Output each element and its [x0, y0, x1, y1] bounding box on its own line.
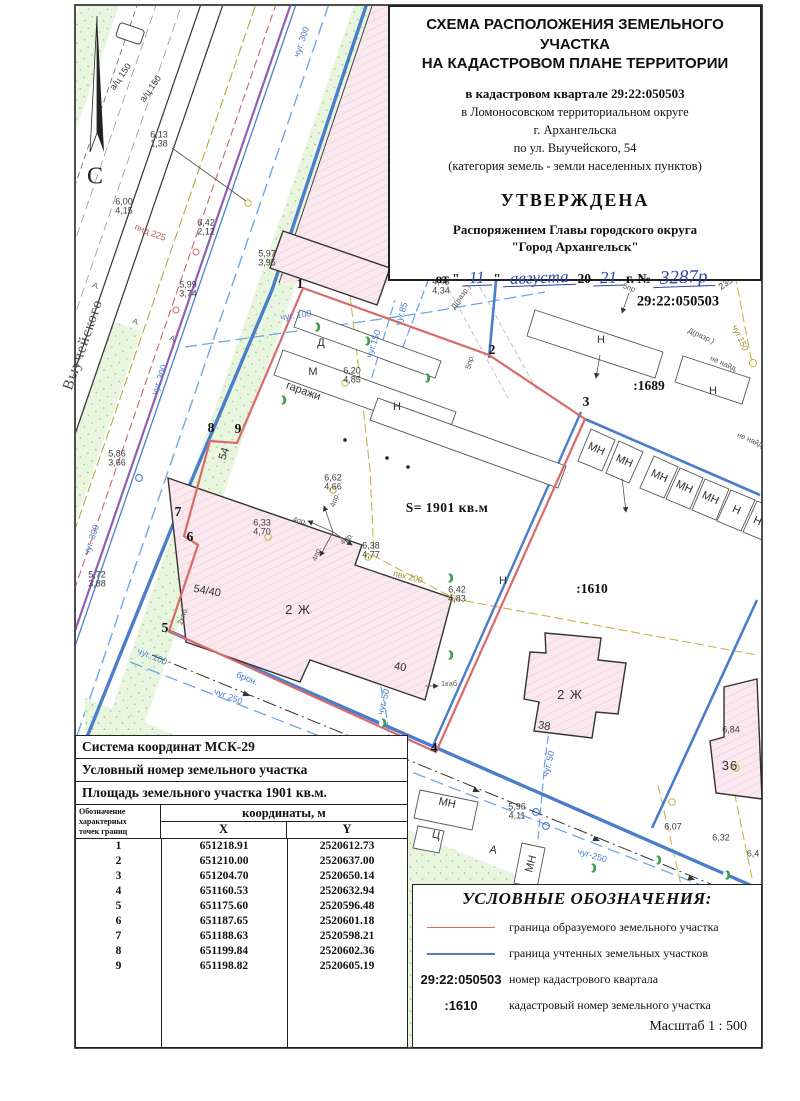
table-row: 2651210.002520637.00: [76, 854, 407, 869]
coord-cell: 651175.60: [161, 899, 287, 914]
table-header: Обозначение характерных точек границ коо…: [76, 805, 407, 839]
approval-date-line: от " 11 " августа 20 21 г. № 3287р: [390, 270, 760, 287]
land-category-line: (категория земель - земли населенных пун…: [390, 159, 760, 174]
building-54-40: [168, 478, 452, 700]
coord-cell: 4: [76, 884, 161, 899]
coord-cell: 651187.65: [161, 914, 287, 929]
road-symbol: [115, 22, 144, 45]
coord-cell: 2520598.21: [287, 929, 407, 944]
table-row: 4651160.532520632.94: [76, 884, 407, 899]
street-line: по ул. Выучейского, 54: [390, 141, 760, 156]
building-36: [710, 679, 762, 799]
legend-title: УСЛОВНЫЕ ОБОЗНАЧЕНИЯ:: [413, 889, 761, 909]
title-block: СХЕМА РАСПОЛОЖЕНИЯ ЗЕМЕЛЬНОГО УЧАСТКА НА…: [388, 5, 762, 281]
district-line: в Ломоносовском территориальном округе: [390, 105, 760, 120]
cadastral-scheme-page: чуг. 300чуг. 300чуг. 300чуг. 100чуг. 100…: [0, 0, 800, 1101]
date-suffix: г. №: [626, 271, 651, 287]
coord-cell: 2520596.48: [287, 899, 407, 914]
coord-cell: 651210.00: [161, 854, 287, 869]
date-prefix: от ": [436, 271, 460, 287]
date-year-prefix: 20: [577, 271, 591, 287]
coord-cell: 1: [76, 839, 161, 854]
date-quote: ": [493, 271, 501, 287]
column-divider: [161, 839, 162, 1047]
coordinates-table: Система координат МСК-29 Условный номер …: [75, 735, 408, 1048]
table-row: 9651198.822520605.19: [76, 959, 407, 974]
coord-cell: 2520637.00: [287, 854, 407, 869]
order-line2: "Город Архангельск": [390, 238, 760, 256]
grass-strip: [0, 321, 141, 671]
plot-area-row: Площадь земельного участка 1901 кв.м.: [76, 782, 407, 805]
handwritten-doc-number: 3287р: [653, 269, 715, 288]
legend-item-registered-boundary: граница учтенных земельных участков: [413, 946, 761, 961]
scheme-title-line1: СХЕМА РАСПОЛОЖЕНИЯ ЗЕМЕЛЬНОГО УЧАСТКА: [390, 15, 760, 54]
coord-cell: 5: [76, 899, 161, 914]
coord-cell: 651199.84: [161, 944, 287, 959]
coord-cell: 651160.53: [161, 884, 287, 899]
table-row: 7651188.632520598.21: [76, 929, 407, 944]
legend-item-new-boundary: граница образуемого земельного участка: [413, 920, 761, 935]
coords-column-header: координаты, м: [161, 805, 407, 822]
coord-cell: 2520650.14: [287, 869, 407, 884]
handwritten-day: 11: [461, 271, 491, 287]
coord-cell: 9: [76, 959, 161, 974]
blue-line-sample: [427, 953, 495, 955]
legend-item-text: кадастровый номер земельного участка: [509, 998, 711, 1013]
table-row: 8651199.842520602.36: [76, 944, 407, 959]
order-line1: Распоряжением Главы городского округа: [390, 221, 760, 239]
coord-cell: 2520612.73: [287, 839, 407, 854]
legend-item-plot-number: :1610 кадастровый номер земельного участ…: [413, 998, 761, 1013]
map-scale: Масштаб 1 : 500: [649, 1019, 747, 1035]
legend-item-text: номер кадастрового квартала: [509, 972, 658, 987]
coord-cell: 651204.70: [161, 869, 287, 884]
coord-cell: 2520602.36: [287, 944, 407, 959]
scheme-title-line2: НА КАДАСТРОВОМ ПЛАНЕ ТЕРРИТОРИИ: [390, 54, 760, 74]
coord-cell: 2520601.18: [287, 914, 407, 929]
coord-cell: 2520632.94: [287, 884, 407, 899]
handwritten-month: августа: [503, 270, 576, 288]
column-divider: [287, 839, 288, 1047]
coord-cell: 8: [76, 944, 161, 959]
handwritten-year: 21: [593, 271, 625, 288]
coord-cell: 2520605.19: [287, 959, 407, 974]
coord-cell: 651188.63: [161, 929, 287, 944]
quarter-number-sample: 29:22:050503: [421, 972, 502, 987]
approved-heading: УТВЕРЖДЕНА: [390, 190, 760, 211]
conditional-number-row: Условный номер земельного участка: [76, 759, 407, 782]
coord-cell: 6: [76, 914, 161, 929]
x-column-header: X: [161, 822, 287, 838]
table-body: 1651218.912520612.732651210.002520637.00…: [76, 839, 407, 1047]
coord-cell: 651198.82: [161, 959, 287, 974]
red-line-sample: [427, 927, 495, 928]
coord-cell: 2: [76, 854, 161, 869]
legend-item-text: граница учтенных земельных участков: [509, 946, 708, 961]
plot-number-sample: :1610: [444, 998, 477, 1013]
y-column-header: Y: [287, 822, 407, 838]
table-row: 3651204.702520650.14: [76, 869, 407, 884]
cadastral-quarter: в кадастровом квартале 29:22:050503: [390, 86, 760, 102]
building-38: [524, 633, 626, 738]
table-row: 1651218.912520612.73: [76, 839, 407, 854]
table-row: 5651175.602520596.48: [76, 899, 407, 914]
city-line: г. Архангельска: [390, 123, 760, 138]
coord-cell: 3: [76, 869, 161, 884]
legend-box: УСЛОВНЫЕ ОБОЗНАЧЕНИЯ: граница образуемог…: [412, 884, 762, 1048]
coord-system-row: Система координат МСК-29: [76, 736, 407, 759]
coord-cell: 7: [76, 929, 161, 944]
legend-item-quarter-number: 29:22:050503 номер кадастрового квартала: [413, 972, 761, 987]
points-column-header: Обозначение характерных точек границ: [76, 805, 161, 838]
table-row: 6651187.652520601.18: [76, 914, 407, 929]
coord-cell: 651218.91: [161, 839, 287, 854]
legend-item-text: граница образуемого земельного участка: [509, 920, 719, 935]
